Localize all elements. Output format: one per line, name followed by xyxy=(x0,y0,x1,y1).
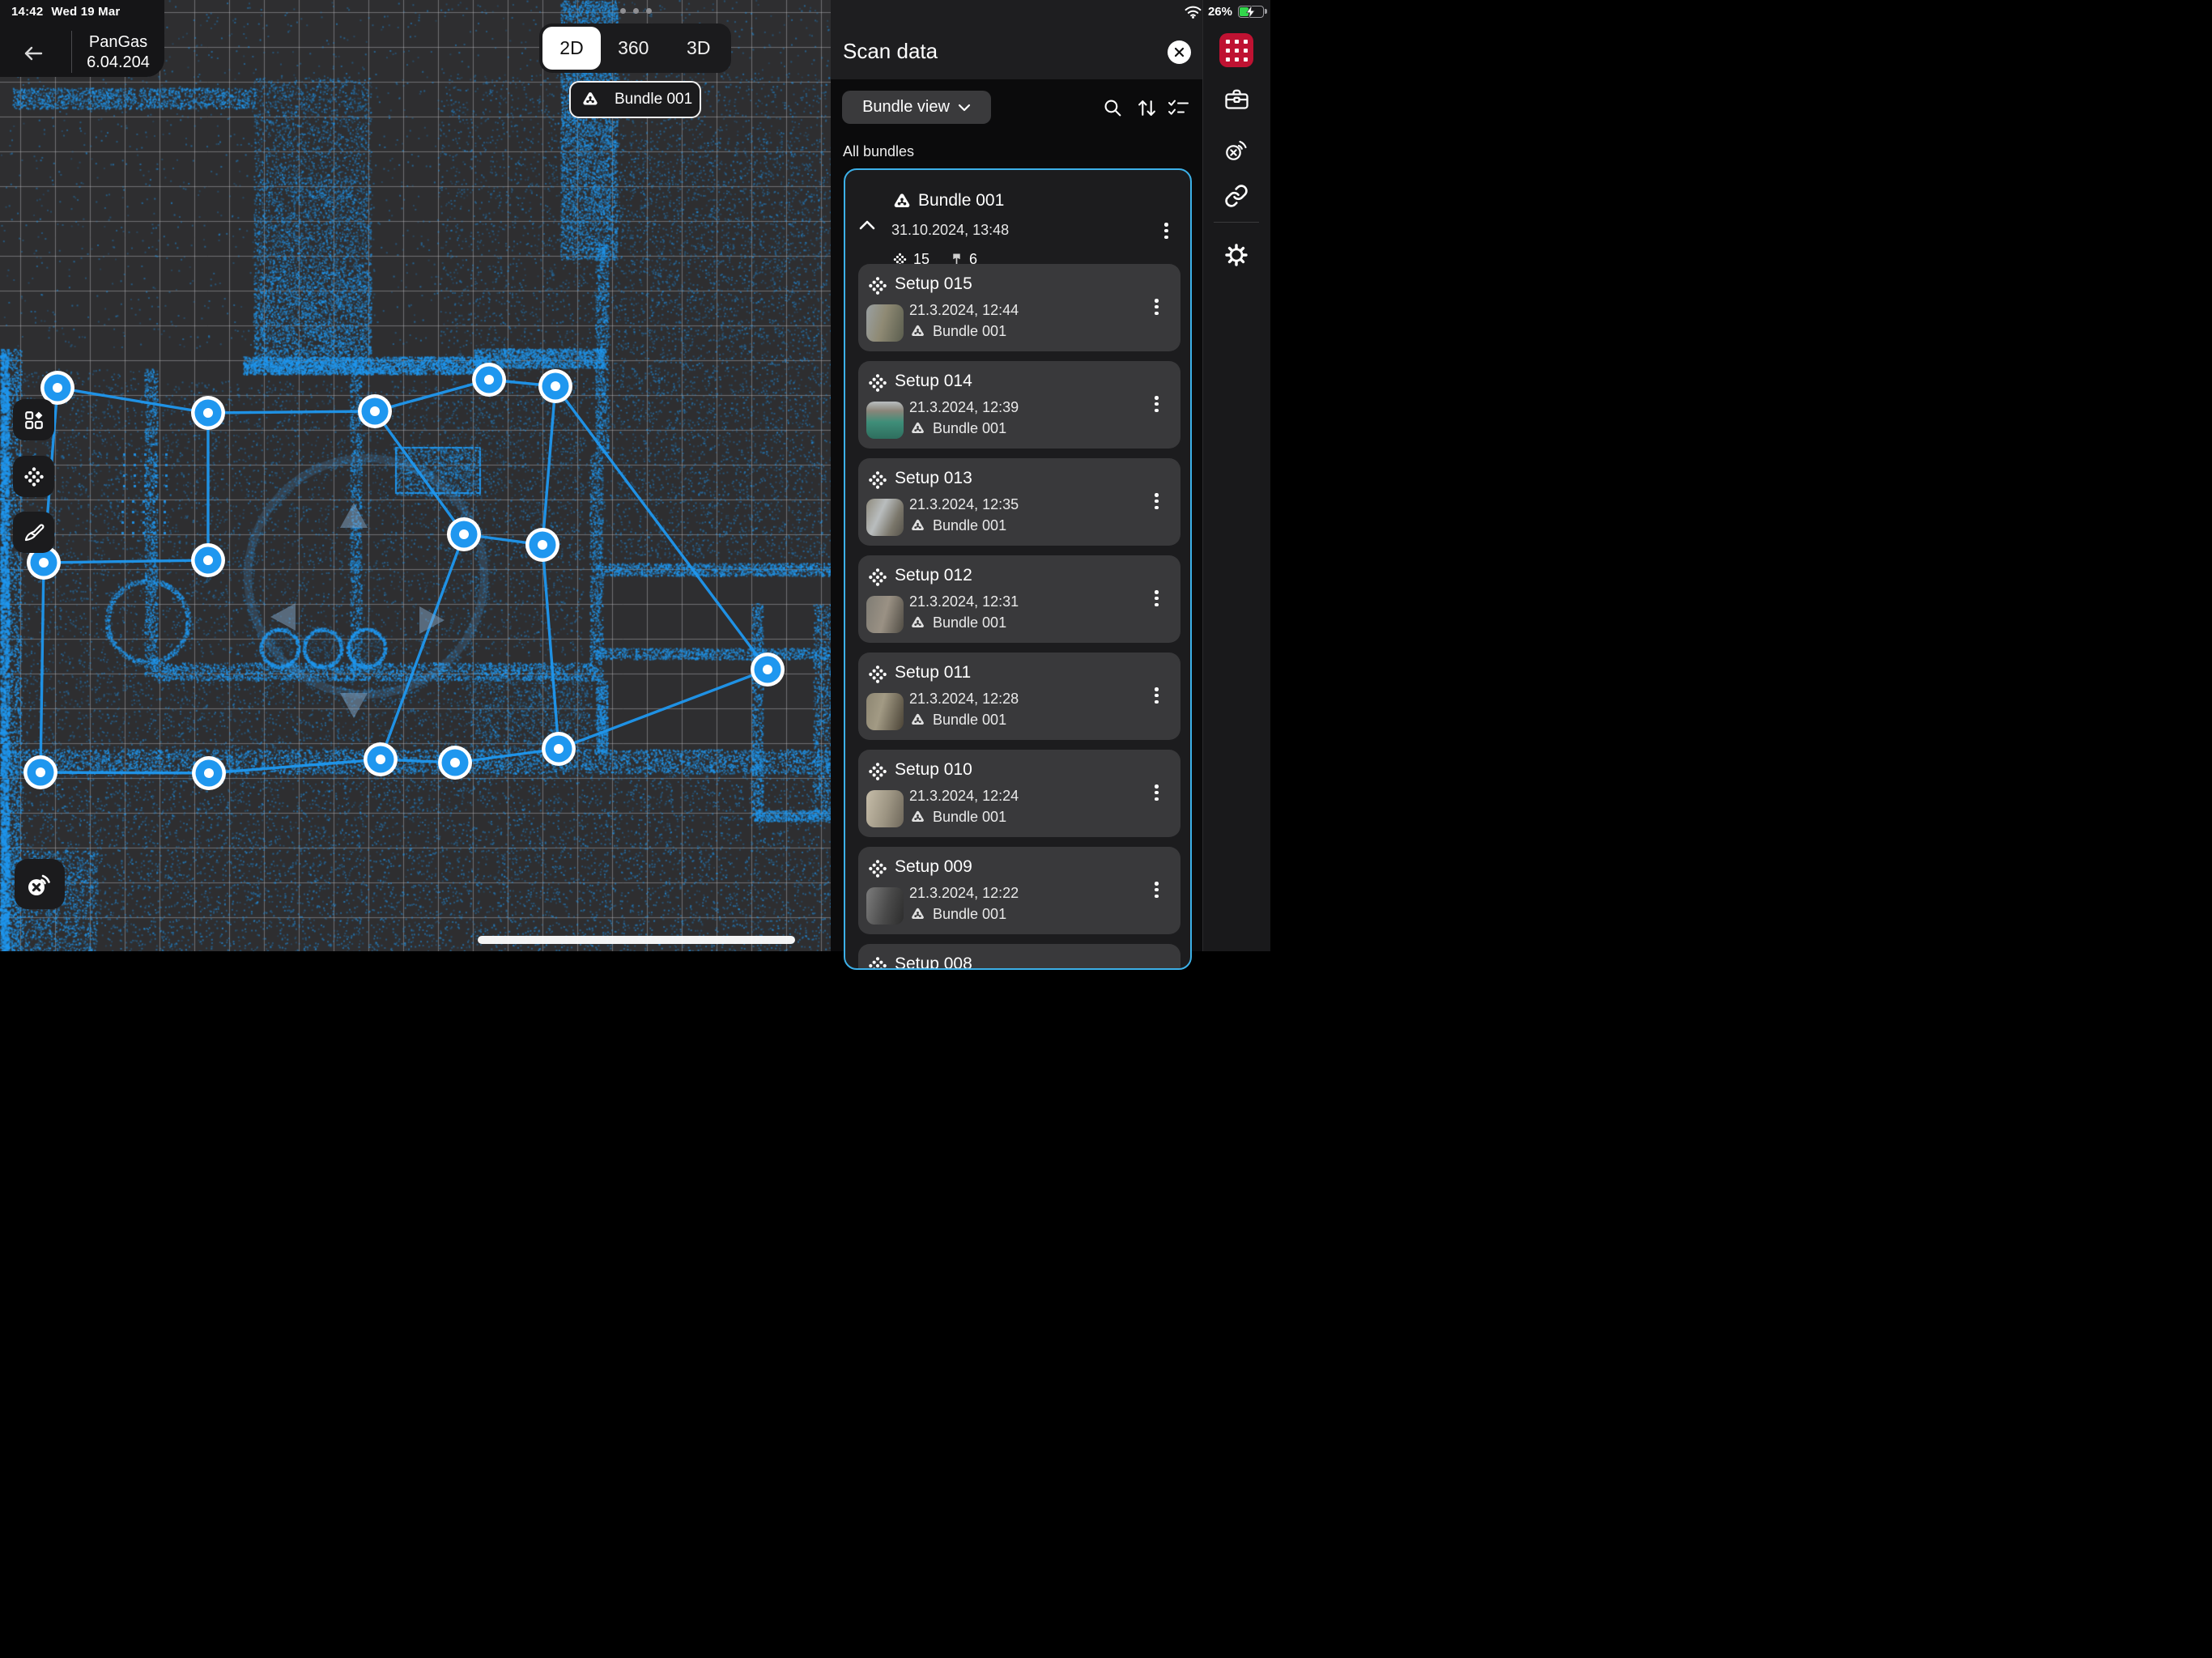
scan-setup-icon xyxy=(868,470,887,490)
pan-arrow-right[interactable] xyxy=(419,606,445,634)
setup-thumbnail[interactable] xyxy=(866,402,904,439)
scan-node[interactable] xyxy=(192,756,226,790)
setup-thumbnail[interactable] xyxy=(866,790,904,827)
filter-checklist-button[interactable] xyxy=(1167,96,1189,119)
scan-node[interactable] xyxy=(23,755,57,789)
setup-bundle-name: Bundle 001 xyxy=(933,420,1006,437)
setup-card[interactable]: Setup 010 21.3.2024, 12:24 Bundle 001 xyxy=(858,750,1180,837)
setup-title: Setup 013 xyxy=(895,469,972,488)
dropdown-label: Bundle view xyxy=(862,98,950,117)
divider xyxy=(1214,222,1259,223)
setup-datetime: 21.3.2024, 12:22 xyxy=(909,885,1019,902)
project-panel: 14:42 Wed 19 Mar PanGas 6.04.204 xyxy=(0,0,164,77)
settings-button[interactable] xyxy=(1223,242,1249,268)
setup-card[interactable]: Setup 015 21.3.2024, 12:44 Bundle 001 xyxy=(858,264,1180,351)
checklist-icon xyxy=(1168,98,1189,117)
setup-bundle-row: Bundle 001 xyxy=(909,614,1006,631)
scan-link-line xyxy=(208,411,375,413)
scan-link-line xyxy=(375,411,464,534)
panel-title: Scan data xyxy=(843,39,938,64)
scan-link-line xyxy=(542,386,555,545)
scan-node[interactable] xyxy=(542,732,576,766)
section-label: All bundles xyxy=(843,143,914,160)
setup-title: Setup 012 xyxy=(895,566,972,585)
clock: 14:42 xyxy=(11,5,43,19)
bundle-chip-label: Bundle 001 xyxy=(615,91,692,108)
toolbox-icon xyxy=(1224,87,1249,111)
setup-bundle-name: Bundle 001 xyxy=(933,614,1006,631)
scan-setup-icon xyxy=(868,373,887,393)
scan-link-line xyxy=(381,534,464,759)
scan-node[interactable] xyxy=(447,517,481,551)
pan-arrow-up[interactable] xyxy=(340,503,368,528)
setup-bundle-name: Bundle 001 xyxy=(933,906,1006,923)
pan-arrow-left[interactable] xyxy=(270,603,296,631)
scan-node[interactable] xyxy=(191,543,225,577)
setup-datetime: 21.3.2024, 12:24 xyxy=(909,788,1019,805)
setup-title: Setup 014 xyxy=(895,372,972,391)
status-right: 26% xyxy=(1184,5,1264,19)
setup-title: Setup 011 xyxy=(895,663,971,682)
home-indicator[interactable] xyxy=(478,936,795,944)
bundle-view-dropdown[interactable]: Bundle view xyxy=(842,91,991,124)
setup-bundle-row: Bundle 001 xyxy=(909,323,1006,340)
link-button[interactable] xyxy=(1223,183,1249,209)
scan-node[interactable] xyxy=(358,394,392,428)
setup-card[interactable]: Setup 008 xyxy=(858,944,1180,970)
scan-link-line xyxy=(375,380,489,411)
scan-link-line xyxy=(44,560,208,563)
link-icon xyxy=(1224,184,1249,208)
setup-thumbnail[interactable] xyxy=(866,887,904,925)
setup-thumbnail[interactable] xyxy=(866,304,904,342)
setup-menu-button[interactable] xyxy=(1155,393,1159,414)
view-mode-toggle: 2D 360 3D xyxy=(539,23,731,73)
scan-link-line xyxy=(40,563,44,772)
wifi-icon xyxy=(1184,5,1202,19)
setup-bundle-name: Bundle 001 xyxy=(933,809,1006,826)
scan-node[interactable] xyxy=(472,363,506,397)
setup-card[interactable]: Setup 013 21.3.2024, 12:35 Bundle 001 xyxy=(858,458,1180,546)
scan-node[interactable] xyxy=(538,369,572,403)
setup-datetime: 21.3.2024, 12:31 xyxy=(909,593,1019,610)
sort-icon xyxy=(1137,98,1157,118)
charging-bolt-icon xyxy=(1245,5,1256,19)
drag-handle[interactable] xyxy=(620,8,652,14)
bundle-title: Bundle 001 xyxy=(918,191,1004,210)
toolbox-button[interactable] xyxy=(1223,86,1249,112)
collapse-chevron-icon[interactable] xyxy=(859,220,875,230)
scan-setup-icon xyxy=(868,956,887,970)
bundle-icon xyxy=(909,712,926,729)
setup-title: Setup 009 xyxy=(895,857,972,877)
scan-node[interactable] xyxy=(364,742,398,776)
scan-setup-icon xyxy=(23,466,45,487)
bundle-datetime: 31.10.2024, 13:48 xyxy=(891,222,1009,239)
tab-2d[interactable]: 2D xyxy=(542,27,601,70)
bundle-icon xyxy=(891,191,912,212)
bundle-icon xyxy=(909,809,926,826)
setup-thumbnail[interactable] xyxy=(866,693,904,730)
scanner-disconnected-icon xyxy=(1224,137,1249,162)
bundle-chip-button[interactable]: Bundle 001 xyxy=(569,81,701,118)
close-panel-button[interactable] xyxy=(1168,40,1191,64)
setup-datetime: 21.3.2024, 12:39 xyxy=(909,399,1019,416)
tab-360[interactable]: 360 xyxy=(601,37,666,59)
bundle-menu-button[interactable] xyxy=(1164,220,1168,241)
setup-card[interactable]: Setup 011 21.3.2024, 12:28 Bundle 001 xyxy=(858,653,1180,740)
setup-bundle-row: Bundle 001 xyxy=(909,809,1006,826)
scan-setup-icon xyxy=(868,665,887,684)
setup-card[interactable]: Setup 014 21.3.2024, 12:39 Bundle 001 xyxy=(858,361,1180,449)
setup-card[interactable]: Setup 012 21.3.2024, 12:31 Bundle 001 xyxy=(858,555,1180,643)
setup-bundle-name: Bundle 001 xyxy=(933,517,1006,534)
search-button[interactable] xyxy=(1101,96,1124,119)
back-button[interactable] xyxy=(21,42,45,65)
setup-bundle-row: Bundle 001 xyxy=(909,906,1006,923)
scan-link-line xyxy=(542,545,559,749)
bundle-icon xyxy=(909,323,926,340)
scan-graph-overlay xyxy=(0,0,831,951)
setup-menu-button[interactable] xyxy=(1155,685,1159,706)
apps-button[interactable] xyxy=(1219,33,1253,67)
scan-node[interactable] xyxy=(191,396,225,430)
scan-setup-icon xyxy=(868,276,887,295)
layout-objects-button[interactable] xyxy=(13,399,54,440)
cut-tool-button[interactable] xyxy=(13,512,54,553)
setup-bundle-row: Bundle 001 xyxy=(909,517,1006,534)
status-left: 14:42 Wed 19 Mar xyxy=(11,5,120,19)
setup-menu-button[interactable] xyxy=(1155,782,1159,803)
scanner-status-button[interactable] xyxy=(15,859,65,909)
sort-button[interactable] xyxy=(1135,96,1158,119)
setup-bundle-row: Bundle 001 xyxy=(909,712,1006,729)
status-date: Wed 19 Mar xyxy=(51,5,120,19)
setup-menu-button[interactable] xyxy=(1155,296,1159,317)
knife-icon xyxy=(23,521,45,543)
scan-link-line xyxy=(57,388,208,413)
divider xyxy=(71,31,72,73)
search-icon xyxy=(1103,98,1123,118)
bundle-card[interactable]: Bundle 001 31.10.2024, 13:48 15 6 xyxy=(844,168,1192,970)
bundle-icon xyxy=(909,420,926,437)
setup-menu-button[interactable] xyxy=(1155,491,1159,512)
scan-node[interactable] xyxy=(525,528,559,562)
setup-thumbnail[interactable] xyxy=(866,596,904,633)
map-viewport[interactable] xyxy=(0,0,831,951)
scan-link-line xyxy=(40,772,209,773)
setup-title: Setup 010 xyxy=(895,760,972,780)
scan-setup-icon xyxy=(868,762,887,781)
setup-bundle-name: Bundle 001 xyxy=(933,712,1006,729)
gear-icon xyxy=(1223,242,1249,268)
right-toolbar xyxy=(1202,0,1270,951)
project-info[interactable]: PanGas 6.04.204 xyxy=(74,32,162,73)
setup-datetime: 21.3.2024, 12:28 xyxy=(909,691,1019,708)
scan-setup-icon xyxy=(868,568,887,587)
tab-3d[interactable]: 3D xyxy=(666,37,732,59)
project-version: 6.04.204 xyxy=(74,53,162,73)
bundle-icon xyxy=(581,90,600,109)
bundle-icon xyxy=(909,906,926,923)
bundle-icon xyxy=(909,614,926,631)
layout-objects-icon xyxy=(23,410,45,431)
setup-menu-button[interactable] xyxy=(1155,588,1159,609)
back-arrow-icon xyxy=(22,43,45,64)
scanner-disconnected-icon xyxy=(26,870,53,898)
setup-title: Setup 015 xyxy=(895,274,972,294)
bundle-icon xyxy=(909,517,926,534)
scan-node[interactable] xyxy=(438,746,472,780)
setup-thumbnail[interactable] xyxy=(866,499,904,536)
setup-bundle-name: Bundle 001 xyxy=(933,323,1006,340)
scanner-connection-button[interactable] xyxy=(1223,136,1249,162)
scan-link-line xyxy=(555,386,768,670)
scan-data-panel: Scan data Bundle view xyxy=(831,0,1202,951)
setup-datetime: 21.3.2024, 12:35 xyxy=(909,496,1019,513)
panel-header: Scan data xyxy=(831,0,1202,79)
scan-link-line xyxy=(559,670,768,749)
setup-card[interactable]: Setup 009 21.3.2024, 12:22 Bundle 001 xyxy=(858,847,1180,934)
pan-arrow-down[interactable] xyxy=(340,693,368,718)
scan-link-line xyxy=(209,759,381,773)
scan-node[interactable] xyxy=(751,653,785,687)
battery-icon xyxy=(1238,6,1264,18)
setup-datetime: 21.3.2024, 12:44 xyxy=(909,302,1019,319)
battery-percent: 26% xyxy=(1208,5,1232,19)
scan-setup-icon xyxy=(868,859,887,878)
close-icon xyxy=(1174,47,1185,57)
setup-title: Setup 008 xyxy=(895,954,972,970)
setup-bundle-row: Bundle 001 xyxy=(909,420,1006,437)
scan-setup-tool-button[interactable] xyxy=(13,456,54,497)
setup-menu-button[interactable] xyxy=(1155,879,1159,900)
project-name: PanGas xyxy=(74,32,162,53)
chevron-down-icon xyxy=(958,104,971,112)
